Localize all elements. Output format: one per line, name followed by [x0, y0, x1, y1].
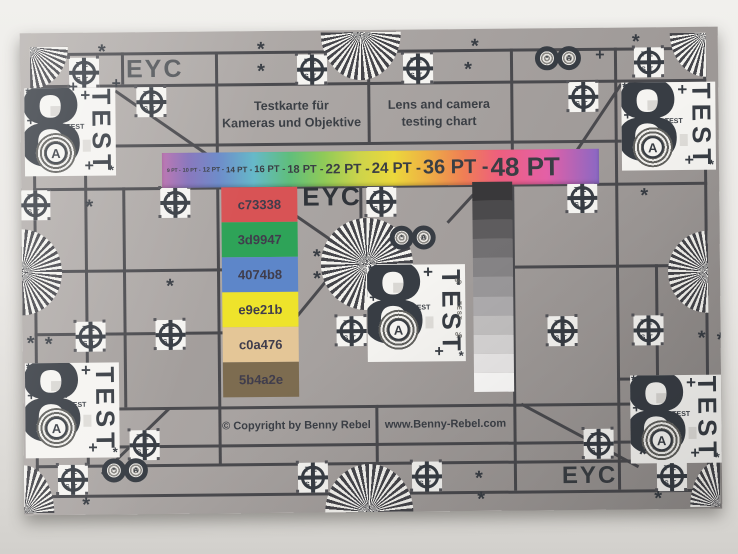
target-label-top: TE [591, 433, 606, 440]
ring-a-icon: A [124, 458, 148, 482]
grayscale-step [472, 182, 512, 201]
color-swatch: 5b4a2e [223, 362, 299, 398]
target-label-bottom: ST [83, 341, 98, 348]
target-label-top: TE [167, 192, 182, 199]
test-chart-card: TE ST TE ST TE ST TE ST TE ST TE ST TE S [20, 27, 723, 516]
target-label-top: TE [574, 187, 589, 194]
asterisk-mark-icon: * [45, 334, 53, 357]
siemens-star-fan-icon [670, 33, 706, 77]
swatch-hex-label: e9e21b [238, 302, 282, 317]
crosshair-target: TE ST [75, 322, 105, 352]
title-german-line1: Testkarte für [254, 97, 329, 115]
aperture-a-glyph: A [651, 429, 673, 451]
asterisk-mark-icon: * [464, 59, 472, 82]
pt-size-label: 48 PT [490, 151, 560, 183]
concentric-rings-icon: A [378, 310, 418, 350]
double-circle-eight-icon: * A [535, 45, 581, 71]
pt-size-label: 18 PT - [287, 163, 323, 175]
target-label-top: TE [554, 320, 569, 327]
asterisk-mark-icon: * [27, 333, 35, 356]
target-label-top: TE [373, 191, 388, 198]
siemens-star-fan-icon [24, 465, 54, 513]
brand-text-top-left: EYC [126, 57, 184, 83]
asterisk-mark-icon: * [459, 348, 464, 362]
pt-size-label: 24 PT - [372, 160, 421, 177]
plus-mark-icon: + [677, 82, 687, 100]
asterisk-mark-icon: * [640, 185, 648, 208]
target-label-top: TE [575, 86, 590, 93]
asterisk-mark-icon: * [313, 246, 321, 269]
siemens-star-fan-icon [321, 32, 401, 81]
font-size-scale-bar: 9 PT -10 PT -12 PT -14 PT -16 PT -18 PT … [162, 149, 599, 188]
asterisk-mark-icon: * [85, 196, 93, 219]
asterisk-mark-icon: * [257, 39, 265, 62]
asterisk-mark-icon: * [368, 264, 373, 277]
tiny-test-label: TEST [455, 301, 461, 320]
target-label-bottom: ST [65, 484, 80, 491]
plus-mark-icon: + [686, 375, 696, 393]
color-swatch: c0a476 [223, 327, 299, 363]
asterisk-mark-icon: * [631, 375, 636, 388]
grayscale-step [473, 296, 513, 315]
micro-pattern [425, 316, 433, 328]
percent-mark: % [454, 277, 461, 286]
target-label-bottom: ST [304, 73, 319, 80]
asterisk-mark-icon: * [166, 275, 174, 298]
color-swatch: e9e21b [222, 292, 298, 328]
asterisk-mark-icon: * [257, 61, 265, 84]
plus-mark-icon: + [623, 106, 631, 122]
asterisk-mark-icon: * [477, 488, 485, 511]
asterisk-mark-icon: * [709, 157, 714, 171]
plus-mark-icon: + [111, 75, 121, 93]
crosshair-target: TE ST [160, 188, 190, 218]
asterisk-mark-icon: * [25, 87, 30, 100]
asterisk-mark-icon: * [632, 31, 640, 54]
plus-mark-icon: + [88, 440, 98, 458]
plus-mark-icon: + [68, 79, 78, 97]
crosshair-target: TE ST [130, 430, 160, 460]
photo-background: TE ST TE ST TE ST TE ST TE ST TE ST TE S [0, 0, 738, 554]
crosshair-target: TE ST [547, 316, 577, 346]
ring-a-icon: A [557, 46, 581, 70]
target-label-top: TE [137, 434, 152, 441]
plus-mark-icon: + [80, 87, 90, 105]
grayscale-step [473, 315, 513, 334]
swatch-hex-label: 5b4a2e [239, 372, 283, 387]
crosshair-target: TE ST [136, 87, 166, 117]
grayscale-step [473, 239, 513, 258]
pt-size-label: 22 PT - [325, 161, 369, 176]
crosshair-target: TE ST [567, 183, 597, 213]
asterisk-mark-icon: * [622, 82, 627, 95]
test-small-label: TEST [665, 118, 683, 125]
target-label-bottom: ST [143, 106, 158, 113]
target-label-bottom: ST [163, 339, 178, 346]
grayscale-step-wedge [472, 182, 514, 392]
ring-asterisk-icon: * [390, 226, 414, 250]
concentric-rings-icon: A [641, 420, 681, 460]
plus-mark-icon: + [85, 158, 95, 176]
copyright-text: © Copyright by Benny Rebel [221, 408, 371, 443]
target-label-bottom: ST [76, 77, 91, 84]
swatch-hex-label: 4074b8 [238, 267, 282, 282]
target-label-top: TE [83, 326, 98, 333]
asterisk-mark-icon: * [313, 268, 321, 291]
title-english-line2: testing chart [401, 113, 476, 131]
swatch-hex-label: 3d9947 [238, 232, 282, 247]
color-swatch-column: c733383d99474074b8e9e21bc0a4765b4a2e [221, 187, 299, 398]
target-label-bottom: ST [410, 72, 425, 79]
siemens-star-fan-icon [690, 461, 720, 507]
brand-text-center: EYC [302, 183, 362, 210]
aperture-a-glyph: A [387, 319, 409, 341]
website-text: www.Benny-Rebel.com [379, 407, 511, 442]
plus-mark-icon: + [632, 399, 640, 415]
crosshair-target: TE ST [584, 429, 614, 459]
siemens-star-fan-icon [30, 47, 68, 89]
target-label-bottom: ST [555, 335, 570, 342]
target-label-bottom: ST [575, 101, 590, 108]
target-label-bottom: ST [373, 206, 388, 213]
color-swatch: 4074b8 [222, 257, 298, 293]
percent-mark: % [455, 331, 462, 340]
resolution-test-square: 8 TEST A TEST + + + * * [25, 362, 120, 458]
crosshair-target: TE ST [155, 320, 185, 350]
pt-size-label: 16 PT - [254, 164, 285, 175]
grayscale-step [474, 334, 514, 353]
target-label-top: TE [143, 91, 158, 98]
asterisk-mark-icon: * [717, 329, 723, 352]
grayscale-step [473, 277, 513, 296]
grid-line-vertical [614, 48, 621, 490]
crosshair-target: TE ST [298, 462, 328, 492]
resolution-test-square: 8 TEST A TEST + + + * * [621, 82, 716, 171]
pt-size-label: 12 PT - [203, 166, 224, 173]
target-label-bottom: ST [344, 335, 359, 342]
target-label-top: TE [65, 469, 80, 476]
target-label-top: TE [419, 465, 434, 472]
target-label-top: TE [640, 319, 655, 326]
color-swatch: c73338 [221, 187, 297, 223]
aperture-a-glyph: A [45, 142, 67, 164]
asterisk-mark-icon: * [82, 494, 90, 515]
target-label-top: TE [162, 324, 177, 331]
ring-asterisk-icon: * [535, 46, 559, 70]
target-label-top: TE [305, 467, 320, 474]
aperture-a-glyph: A [45, 417, 67, 439]
target-label-bottom: ST [137, 449, 152, 456]
grid-line-horizontal [34, 268, 222, 273]
title-german-line2: Kameras und Objektive [222, 114, 361, 133]
plus-mark-icon: + [81, 362, 91, 380]
grid-line-vertical [122, 187, 127, 407]
concentric-rings-icon: A [633, 127, 673, 167]
plus-mark-icon: + [61, 386, 71, 404]
asterisk-mark-icon: * [109, 162, 114, 176]
pt-size-label: 14 PT - [226, 165, 252, 174]
ring-a-icon: A [412, 225, 436, 249]
asterisk-mark-icon: * [26, 362, 31, 375]
target-label-bottom: ST [305, 481, 320, 488]
crosshair-target: TE ST [366, 187, 396, 217]
concentric-rings-icon: A [36, 133, 76, 173]
concentric-rings-icon: A [36, 408, 76, 448]
asterisk-mark-icon: * [654, 488, 662, 511]
grid-line-vertical [375, 405, 379, 462]
target-label-bottom: ST [419, 480, 434, 487]
chart-markings-layer: TE ST TE ST TE ST TE ST TE ST TE ST TE S [20, 27, 718, 34]
asterisk-mark-icon: * [98, 41, 106, 64]
grayscale-step [474, 373, 514, 392]
target-label-bottom: ST [167, 207, 182, 214]
color-swatch: 3d9947 [222, 222, 298, 258]
asterisk-mark-icon: * [715, 450, 720, 464]
grayscale-step [472, 201, 512, 220]
grid-line-horizontal [35, 402, 709, 411]
crosshair-target: TE ST [412, 461, 442, 491]
target-label-top: TE [664, 465, 679, 472]
asterisk-mark-icon: * [698, 327, 706, 350]
plus-mark-icon: + [423, 264, 433, 282]
plus-mark-icon: + [369, 289, 377, 305]
pt-size-label: 10 PT - [183, 167, 201, 173]
siemens-star-fan-icon [668, 231, 709, 313]
diagonal-line [446, 194, 474, 224]
crosshair-target: TE ST [633, 315, 663, 345]
plus-mark-icon: + [595, 47, 605, 65]
crosshair-target: TE ST [336, 316, 366, 346]
asterisk-mark-icon: * [113, 444, 118, 458]
test-small-label: TEST [672, 411, 690, 418]
resolution-test-square: 8 TEST A TEST + + + * * [367, 264, 466, 362]
target-label-bottom: ST [27, 209, 42, 216]
asterisk-mark-icon: * [471, 35, 479, 58]
crosshair-target: TE ST [403, 53, 433, 83]
crosshair-target: TE ST [297, 54, 327, 84]
plus-mark-icon: + [27, 387, 35, 403]
title-english-line1: Lens and camera [388, 95, 490, 113]
crosshair-target: TE ST [20, 190, 50, 220]
target-label-top: TE [27, 194, 42, 201]
target-label-bottom: ST [641, 66, 656, 73]
swatch-hex-label: c73338 [238, 197, 282, 212]
siemens-star-fan-icon [22, 229, 63, 315]
pt-size-label: 9 PT - [167, 167, 181, 173]
test-small-label: TEST [66, 124, 84, 131]
crosshair-target: TE ST [58, 465, 88, 495]
target-label-top: TE [76, 62, 91, 69]
resolution-test-square: 8 TEST A TEST + + + * * [24, 87, 116, 176]
target-label-top: TE [641, 51, 656, 58]
target-label-bottom: ST [591, 448, 606, 455]
target-label-top: TE [343, 320, 358, 327]
plus-mark-icon: + [26, 112, 34, 128]
grayscale-step [474, 353, 514, 372]
siemens-star-fan-icon [325, 464, 413, 513]
test-small-label: TEST [412, 304, 430, 311]
plus-mark-icon: + [685, 152, 695, 170]
grid-line-vertical [121, 52, 124, 84]
pt-size-label: 36 PT - [423, 156, 489, 180]
target-label-bottom: ST [664, 480, 679, 487]
title-german: Testkarte für Kameras und Objektive [217, 88, 365, 141]
target-label-bottom: ST [641, 334, 656, 341]
title-english: Lens and camera testing chart [369, 87, 508, 140]
grayscale-step [473, 220, 513, 239]
double-circle-eight-icon: * A [102, 457, 148, 483]
diagonal-line [521, 403, 640, 468]
plus-mark-icon: + [690, 445, 700, 463]
aperture-a-glyph: A [642, 136, 664, 158]
brand-text-bottom-right: EYC [562, 464, 618, 489]
asterisk-mark-icon: * [639, 444, 647, 467]
double-circle-eight-icon: * A [390, 224, 436, 250]
target-label-top: TE [304, 58, 319, 65]
target-label-bottom: ST [574, 202, 589, 209]
crosshair-target: TE ST [568, 82, 598, 112]
target-label-top: TE [410, 57, 425, 64]
plus-mark-icon: + [434, 343, 444, 361]
test-small-label: TEST [68, 402, 86, 409]
swatch-hex-label: c0a476 [239, 337, 283, 352]
grayscale-step [473, 258, 513, 277]
asterisk-mark-icon: * [475, 467, 483, 490]
grid-line-horizontal [35, 331, 223, 336]
ring-asterisk-icon: * [102, 458, 126, 482]
